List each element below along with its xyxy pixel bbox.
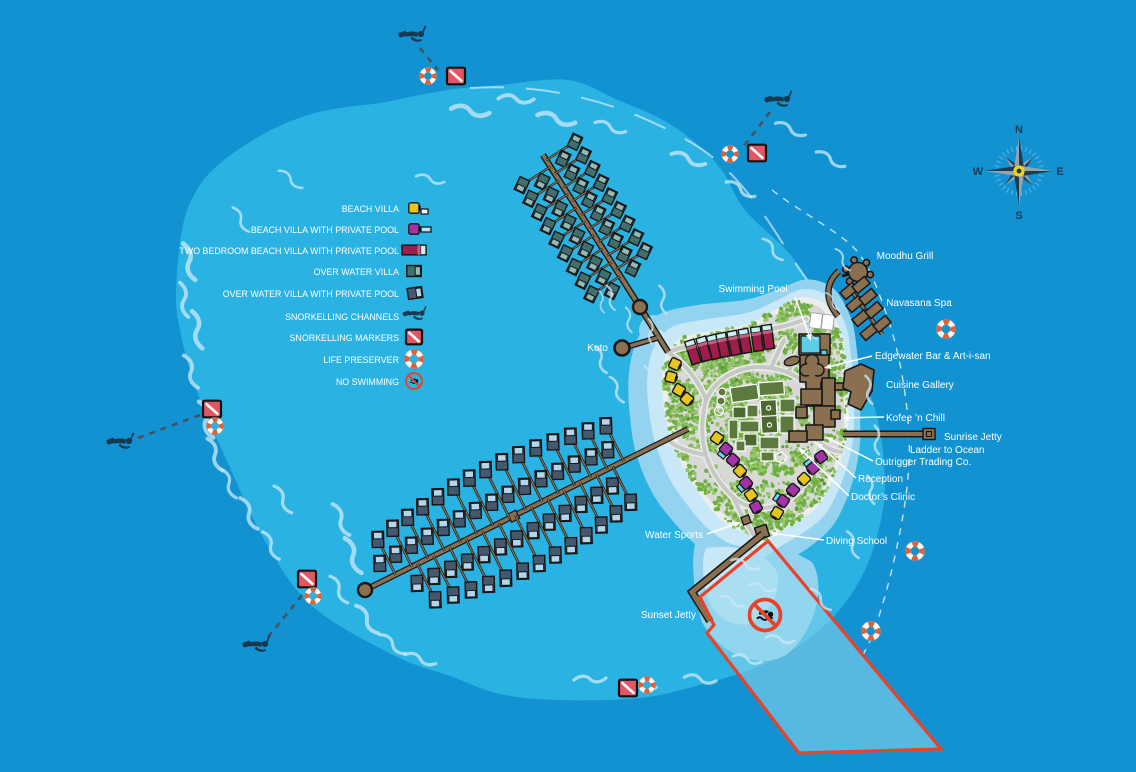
svg-text:OVER WATER VILLA: OVER WATER VILLA (314, 267, 399, 277)
svg-text:Swimming Pool: Swimming Pool (719, 284, 788, 295)
svg-text:Water Sports: Water Sports (645, 530, 703, 541)
svg-text:SNORKELLING CHANNELS: SNORKELLING CHANNELS (285, 312, 399, 322)
svg-text:Diving School: Diving School (826, 536, 887, 547)
svg-text:Outrigger Trading Co.: Outrigger Trading Co. (875, 457, 971, 468)
svg-text:Navasana Spa: Navasana Spa (886, 298, 952, 309)
svg-text:Sunrise Jetty: Sunrise Jetty (944, 432, 1002, 443)
svg-text:Kofee ’n Chill: Kofee ’n Chill (886, 413, 945, 424)
svg-text:Reception: Reception (858, 474, 903, 485)
svg-text:TWO BEDROOM BEACH VILLA WITH P: TWO BEDROOM BEACH VILLA WITH PRIVATE POO… (179, 246, 399, 256)
svg-text:S: S (1015, 210, 1022, 222)
svg-text:NO SWIMMING: NO SWIMMING (336, 377, 399, 387)
svg-text:W: W (973, 166, 984, 178)
svg-text:E: E (1056, 166, 1063, 178)
svg-text:Ladder to Ocean: Ladder to Ocean (910, 445, 985, 456)
svg-text:Cuisine Gallery: Cuisine Gallery (886, 380, 954, 391)
svg-text:Moodhu Grill: Moodhu Grill (877, 251, 934, 262)
svg-text:LIFE PRESERVER: LIFE PRESERVER (323, 355, 399, 365)
svg-text:N: N (1015, 124, 1023, 136)
svg-text:Koto: Koto (587, 343, 608, 354)
svg-text:Sunset Jetty: Sunset Jetty (641, 610, 696, 621)
svg-text:BEACH VILLA: BEACH VILLA (342, 204, 399, 214)
svg-text:BEACH VILLA WITH PRIVATE POOL: BEACH VILLA WITH PRIVATE POOL (251, 225, 399, 235)
svg-text:Doctor’s Clinic: Doctor’s Clinic (851, 492, 915, 503)
svg-text:OVER WATER VILLA WITH PRIVATE: OVER WATER VILLA WITH PRIVATE POOL (223, 289, 399, 299)
svg-text:Edgewater Bar & Art-i-san: Edgewater Bar & Art-i-san (875, 351, 991, 362)
svg-text:SNORKELLING MARKERS: SNORKELLING MARKERS (290, 333, 400, 343)
